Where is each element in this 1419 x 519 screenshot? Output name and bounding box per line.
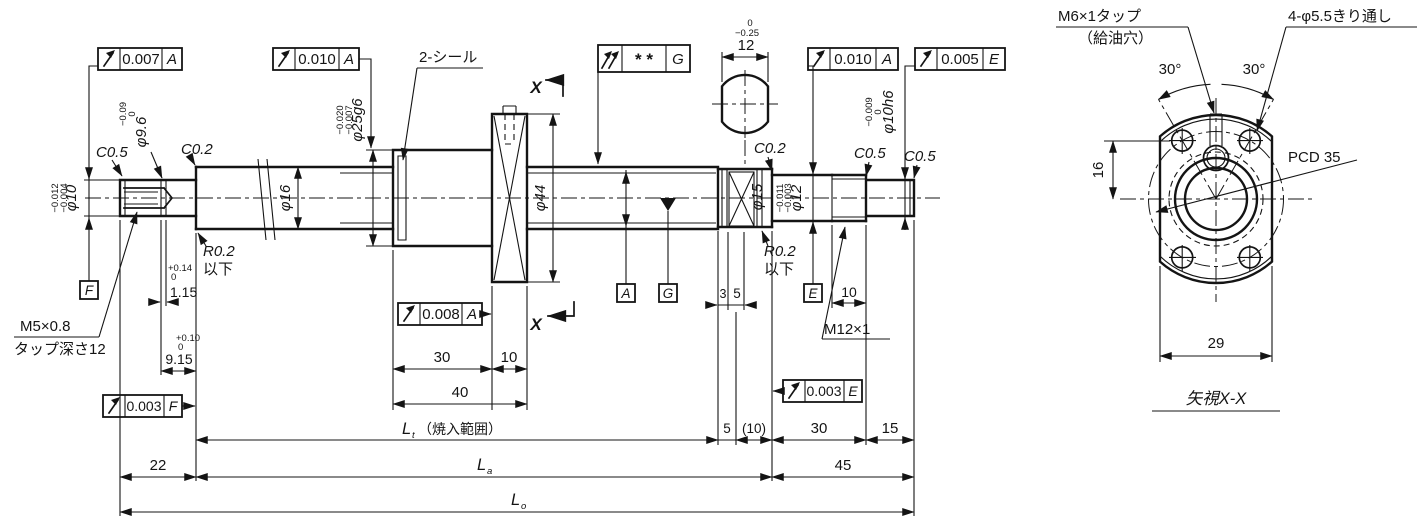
datum-letter: F [85, 283, 94, 298]
fcf-value: 0.003 [126, 398, 161, 414]
dim-15: 15 [882, 420, 899, 437]
dim-dia10h6-tol-l: −0.009 [864, 97, 875, 126]
fcf-value: 0.005 [941, 51, 979, 68]
dim-dia12-tol-l: −0.011 [775, 184, 786, 213]
dim-nut-40: 40 [452, 384, 469, 401]
dim-angle-left: 30° [1159, 61, 1182, 78]
dim-5: 5 [723, 421, 731, 436]
label-tap-depth: タップ深さ12 [14, 341, 106, 358]
dim-22: 22 [150, 457, 167, 474]
dim-thread-10: 10 [841, 284, 857, 300]
label-r02-right: R0.2 [764, 243, 796, 260]
label-seals: 2-シール [419, 49, 477, 66]
dim-dia96: φ9.6 [133, 116, 150, 147]
dim-nut-30: 30 [434, 349, 451, 366]
fcf-value: * * [635, 50, 653, 69]
dim-groove-3: 3 [720, 287, 727, 301]
fcf-datum: F [169, 398, 179, 414]
label-r02-left: R0.2 [203, 243, 235, 260]
label-c02-left: C0.2 [181, 141, 213, 158]
fcf-runout-0003-E: 0.003 E [773, 380, 862, 402]
label-m6-tap: M6×1タップ [1058, 8, 1141, 25]
dim-la-sub: a [487, 466, 492, 477]
view-title: 矢視X-X [1186, 390, 1248, 408]
label-c05-left: C0.5 [96, 144, 128, 161]
datum-letter: E [808, 286, 818, 301]
dim-915-tol-l: 0 [178, 342, 183, 353]
fcf-runout-0008-A: 0.008 A [398, 303, 491, 325]
fcf-datum: A [881, 51, 892, 68]
dim-45: 45 [835, 457, 852, 474]
dim-30: 30 [811, 420, 828, 437]
dim-flat12: 12 [738, 37, 755, 54]
fcf-datum: E [848, 383, 858, 399]
dim-lt-sub: t [412, 430, 415, 441]
label-m6-tap-note: （給油穴） [1078, 30, 1153, 47]
label-pcd35: PCD 35 [1288, 149, 1341, 166]
fcf-value: 0.003 [806, 383, 841, 399]
fcf-datum: A [343, 51, 354, 68]
engineering-drawing-ballscrew: 0.007 A 0.010 A * * G 0.010 A [0, 0, 1419, 519]
datum-letter: G [663, 286, 674, 301]
dim-29: 29 [1208, 335, 1225, 352]
fcf-datum: G [672, 51, 684, 68]
label-c05-right2: C0.5 [904, 148, 936, 165]
label-r02-right-note: 以下 [764, 261, 794, 278]
fcf-value: 0.007 [122, 51, 160, 68]
section-letter-top: X [529, 78, 543, 97]
fcf-value: 0.010 [298, 51, 336, 68]
dim-dia10-tol-l: −0.012 [50, 183, 61, 212]
dim-groove-5: 5 [733, 286, 741, 301]
label-c02-right: C0.2 [754, 140, 786, 157]
dim-flat12-tol-l: −0.25 [735, 28, 759, 39]
dim-dia16: φ16 [277, 184, 294, 211]
dim-lo: L [511, 491, 520, 509]
dim-la: L [477, 456, 486, 474]
label-m12: M12×1 [824, 321, 870, 338]
fcf-datum: E [989, 51, 1000, 68]
dim-lo-sub: o [521, 501, 526, 512]
label-tap-m5: M5×0.8 [20, 318, 70, 335]
fcf-datum: A [466, 306, 477, 323]
dim-10-ref: (10) [742, 421, 766, 436]
datum-F: F [80, 281, 98, 299]
dim-915: 9.15 [165, 351, 192, 367]
dim-nut-10: 10 [501, 349, 518, 366]
drawing-canvas: 0.007 A 0.010 A * * G 0.010 A [0, 0, 1419, 519]
dim-lt: L [402, 420, 411, 438]
fcf-value: 0.008 [422, 306, 460, 323]
label-c05-right1: C0.5 [854, 145, 886, 162]
dim-16: 16 [1090, 162, 1107, 179]
fcf-datum: A [166, 51, 177, 68]
fcf-runout-0003-F: 0.003 F [103, 395, 195, 417]
label-r02-left-note: 以下 [203, 261, 233, 278]
dim-dia96-tol-l: −0.09 [118, 102, 129, 126]
dim-dia44: φ44 [532, 185, 549, 211]
dim-dia15: φ15 [749, 183, 766, 210]
dim-dia25-tol-l: −0.020 [335, 105, 346, 134]
datum-E: E [804, 284, 822, 302]
label-through-holes: 4-φ5.5きり通し [1288, 8, 1392, 25]
dim-angle-right: 30° [1243, 61, 1266, 78]
datum-letter: A [620, 286, 630, 301]
dim-groove-115: 1.15 [170, 284, 197, 300]
section-letter-bottom: X [529, 315, 543, 334]
fcf-value: 0.010 [834, 51, 872, 68]
dim-lt-note: （焼入範囲） [418, 421, 502, 437]
dim-groove-115-tol-l: 0 [171, 272, 176, 283]
